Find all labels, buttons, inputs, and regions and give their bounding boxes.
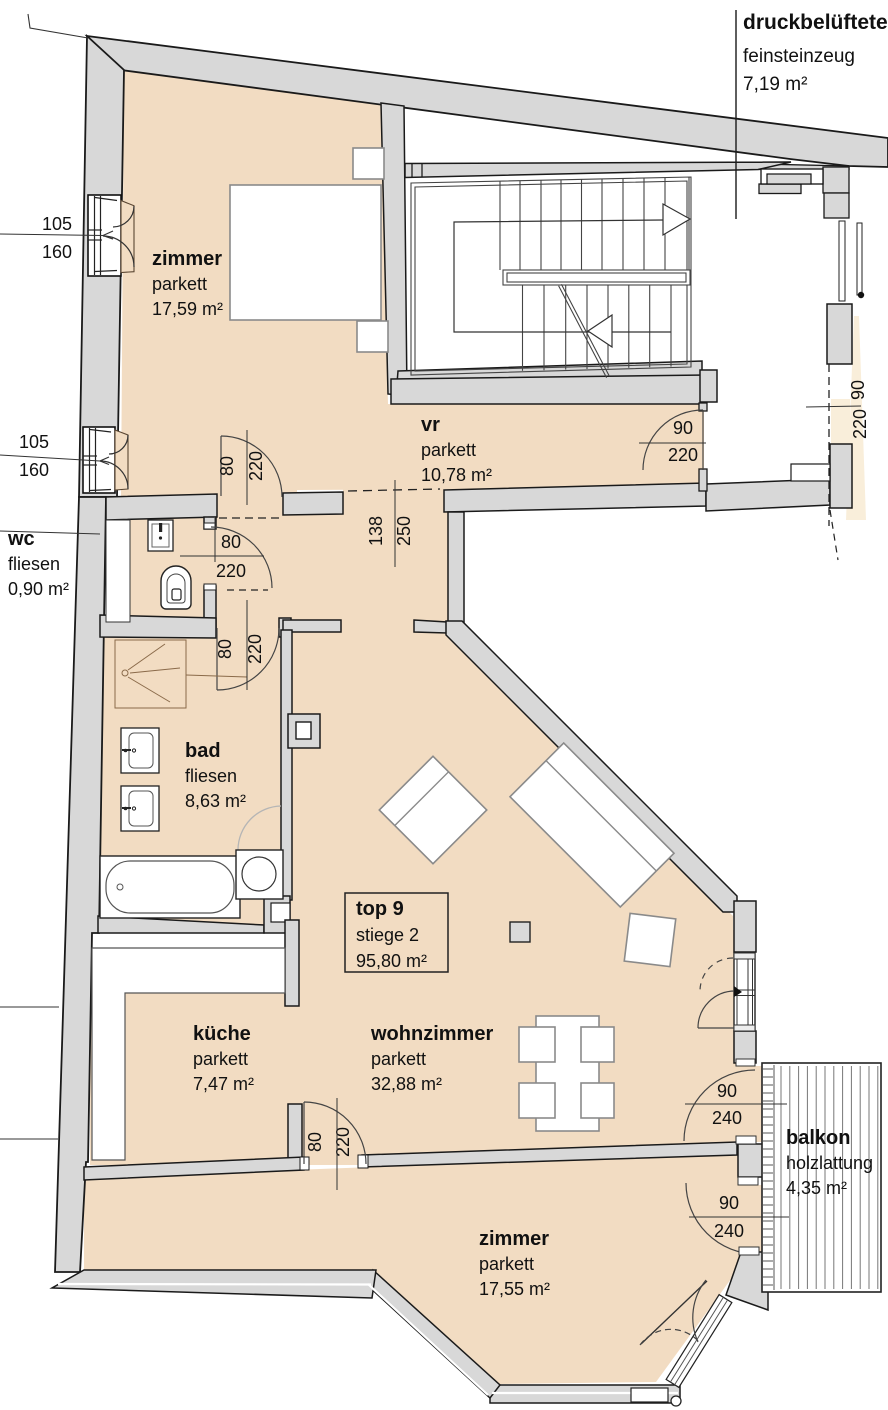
svg-text:240: 240 (714, 1221, 744, 1241)
svg-text:4,35 m²: 4,35 m² (786, 1178, 847, 1198)
svg-text:90: 90 (848, 380, 868, 400)
svg-text:160: 160 (42, 242, 72, 262)
svg-text:bad: bad (185, 740, 221, 762)
svg-text:feinsteinzeug: feinsteinzeug (743, 46, 855, 67)
svg-text:holzlattung: holzlattung (786, 1153, 873, 1173)
svg-text:105: 105 (19, 432, 49, 452)
svg-text:7,47 m²: 7,47 m² (193, 1074, 254, 1094)
svg-text:80: 80 (305, 1132, 325, 1152)
svg-text:7,19 m²: 7,19 m² (743, 74, 807, 95)
svg-text:240: 240 (712, 1108, 742, 1128)
svg-text:90: 90 (673, 418, 693, 438)
svg-text:wohnzimmer: wohnzimmer (370, 1023, 493, 1045)
svg-text:250: 250 (394, 516, 414, 546)
svg-text:fliesen: fliesen (185, 766, 237, 786)
svg-text:90: 90 (719, 1193, 739, 1213)
svg-text:160: 160 (19, 460, 49, 480)
svg-text:10,78 m²: 10,78 m² (421, 465, 492, 485)
svg-text:parkett: parkett (193, 1049, 248, 1069)
svg-text:80: 80 (221, 532, 241, 552)
svg-text:220: 220 (850, 409, 870, 439)
svg-text:90: 90 (717, 1081, 737, 1101)
svg-text:vr: vr (421, 414, 440, 436)
svg-text:220: 220 (668, 445, 698, 465)
svg-text:top 9: top 9 (356, 898, 404, 920)
svg-text:wc: wc (7, 528, 35, 550)
svg-text:zimmer: zimmer (152, 248, 222, 270)
svg-text:80: 80 (215, 639, 235, 659)
svg-text:zimmer: zimmer (479, 1228, 549, 1250)
svg-text:220: 220 (216, 561, 246, 581)
svg-text:stiege 2: stiege 2 (356, 925, 419, 945)
svg-text:17,55 m²: 17,55 m² (479, 1279, 550, 1299)
svg-text:8,63 m²: 8,63 m² (185, 791, 246, 811)
svg-text:küche: küche (193, 1023, 251, 1045)
svg-text:220: 220 (333, 1127, 353, 1157)
svg-text:32,88 m²: 32,88 m² (371, 1074, 442, 1094)
svg-text:0,90 m²: 0,90 m² (8, 579, 69, 599)
svg-text:220: 220 (246, 451, 266, 481)
svg-text:druckbelüftetes: druckbelüftetes (743, 11, 888, 34)
svg-text:105: 105 (42, 214, 72, 234)
svg-text:17,59 m²: 17,59 m² (152, 299, 223, 319)
svg-text:parkett: parkett (479, 1254, 534, 1274)
svg-text:balkon: balkon (786, 1127, 850, 1149)
svg-text:parkett: parkett (421, 440, 476, 460)
svg-text:80: 80 (217, 456, 237, 476)
svg-text:220: 220 (245, 634, 265, 664)
svg-text:parkett: parkett (152, 274, 207, 294)
svg-text:138: 138 (366, 516, 386, 546)
svg-text:95,80 m²: 95,80 m² (356, 951, 427, 971)
svg-text:fliesen: fliesen (8, 554, 60, 574)
svg-text:parkett: parkett (371, 1049, 426, 1069)
